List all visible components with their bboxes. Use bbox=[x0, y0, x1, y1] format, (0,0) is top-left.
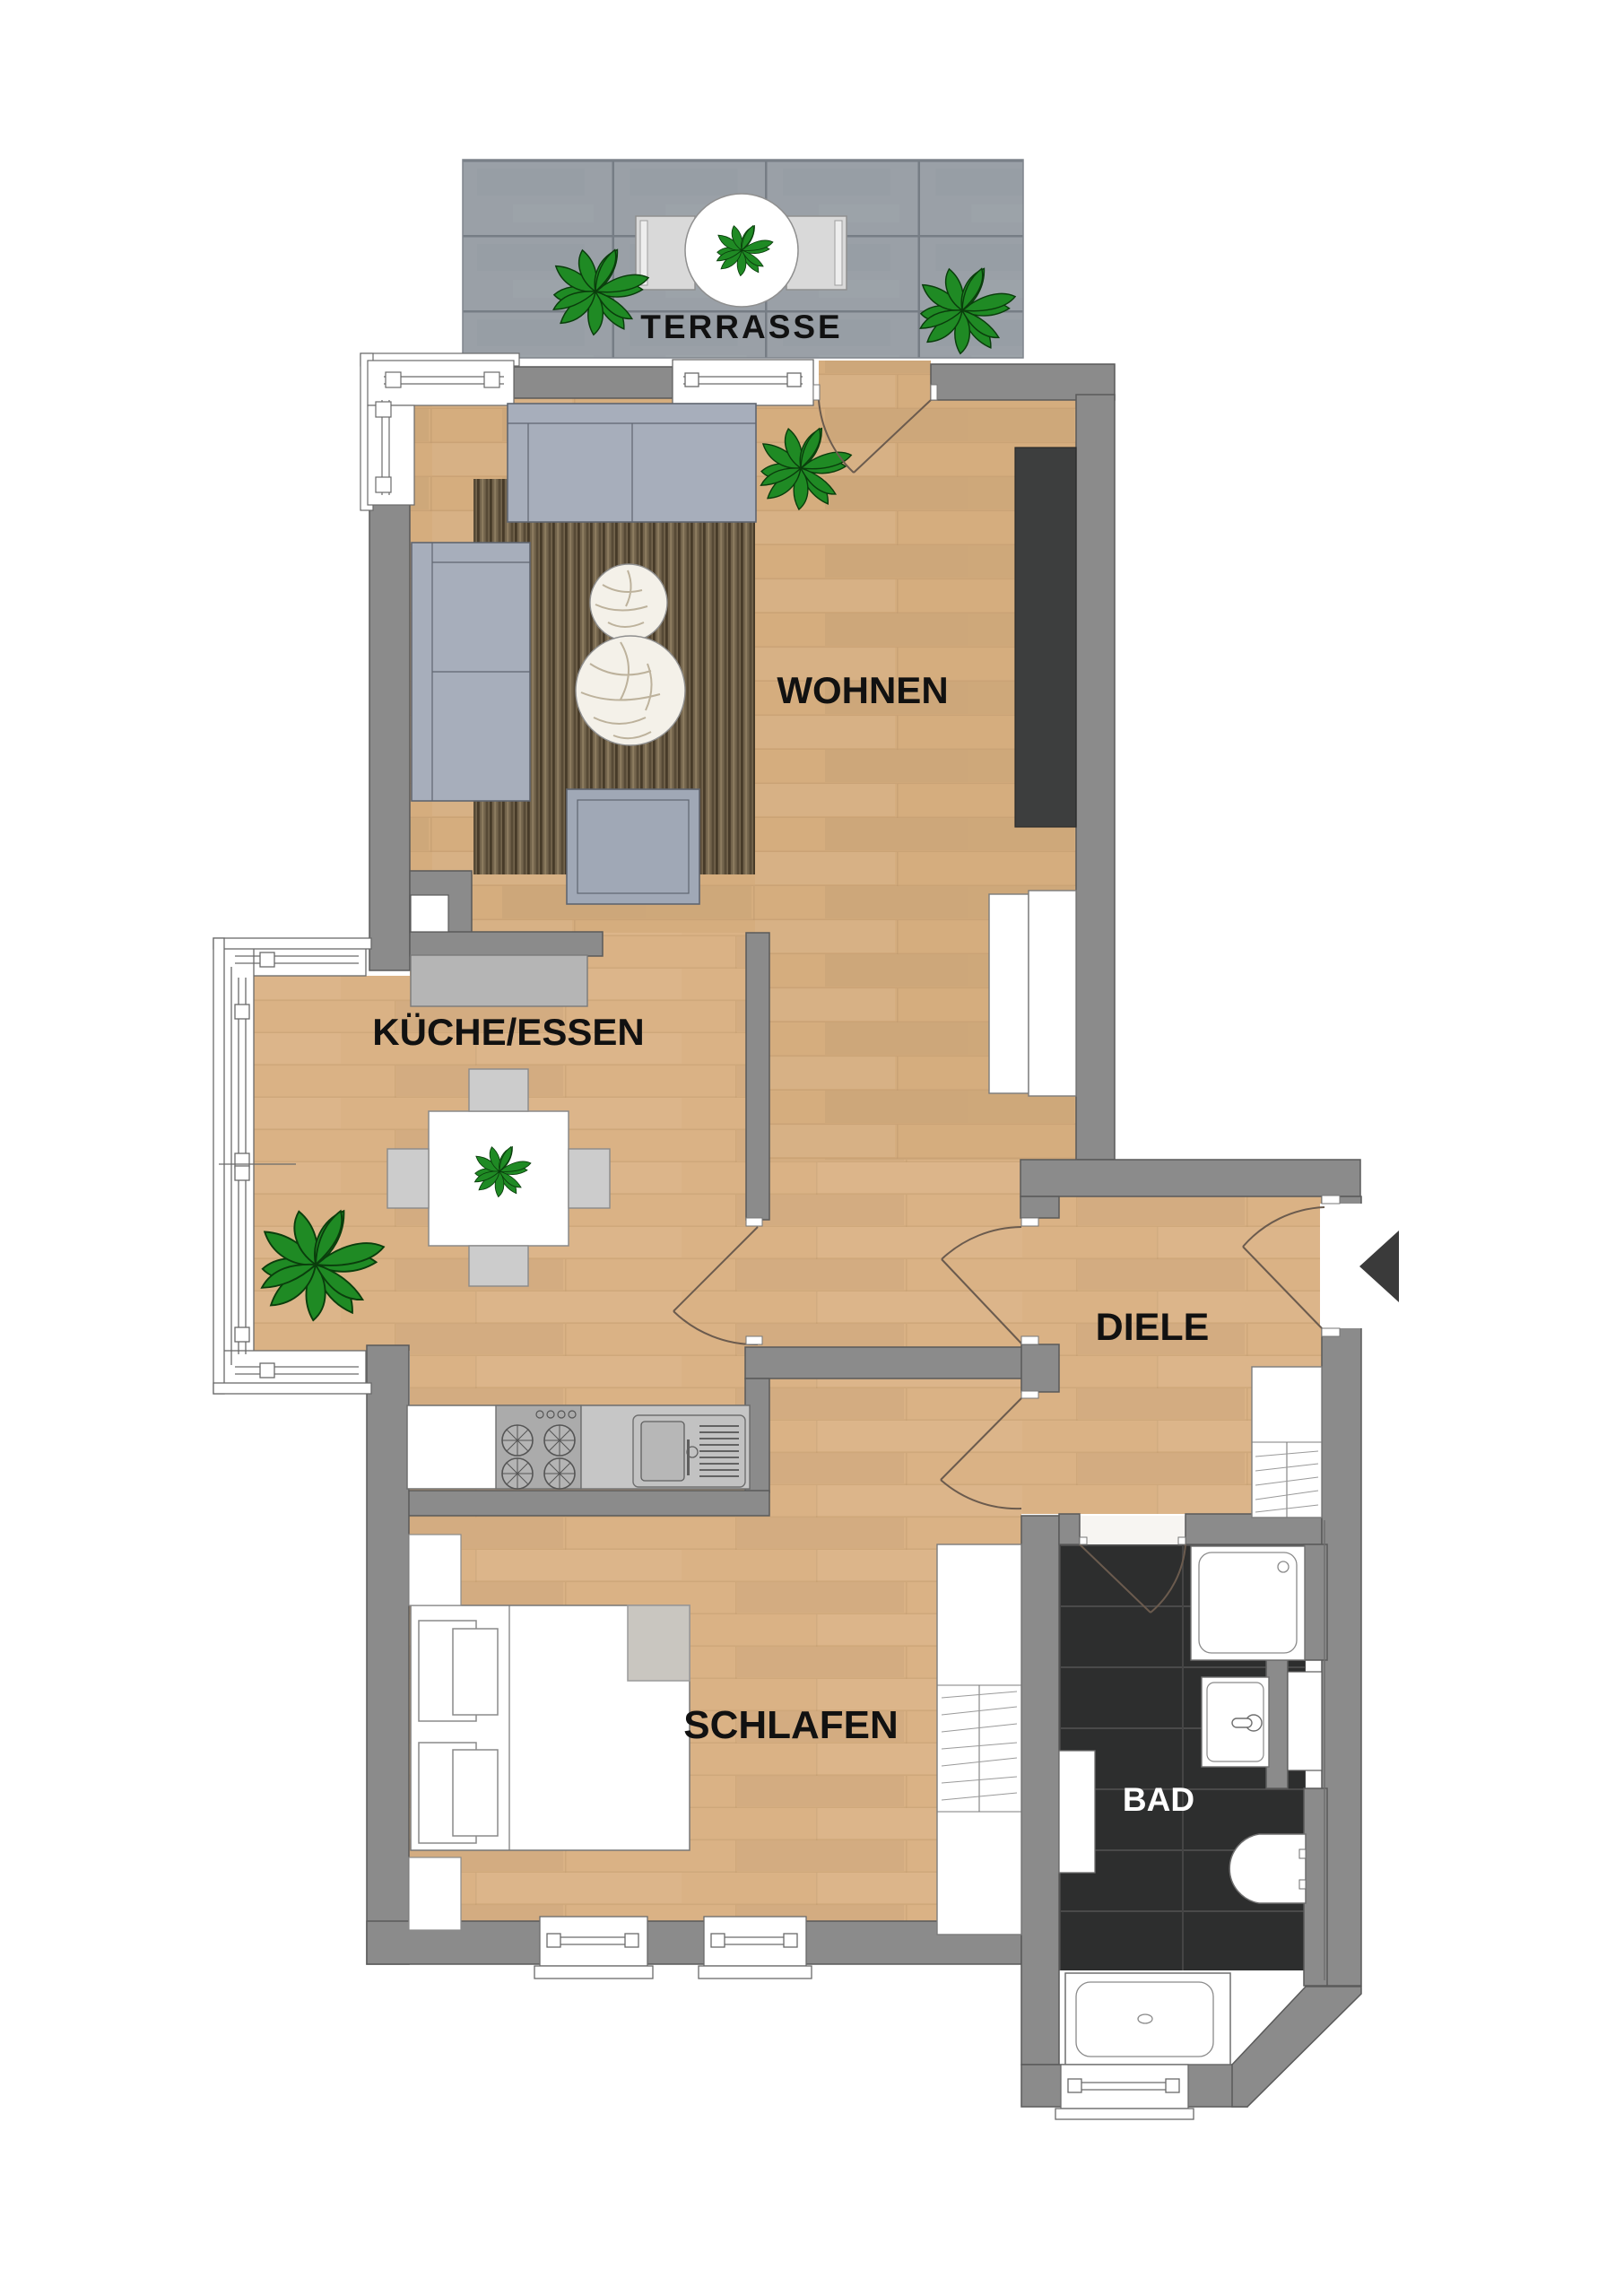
svg-text:DIELE: DIELE bbox=[1096, 1306, 1210, 1349]
svg-text:KÜCHE/ESSEN: KÜCHE/ESSEN bbox=[372, 1011, 644, 1053]
svg-text:SCHLAFEN: SCHLAFEN bbox=[683, 1703, 899, 1747]
svg-text:BAD: BAD bbox=[1123, 1781, 1194, 1818]
svg-text:WOHNEN: WOHNEN bbox=[777, 669, 948, 711]
svg-text:TERRASSE: TERRASSE bbox=[640, 309, 842, 345]
